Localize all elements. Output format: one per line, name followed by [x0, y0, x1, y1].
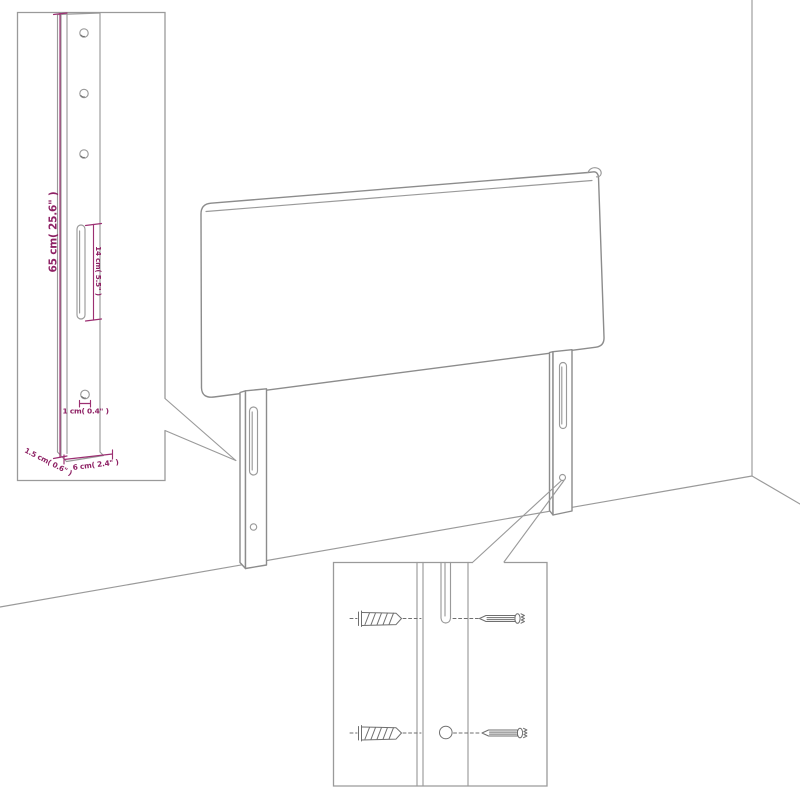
leader-line-inset1-top [165, 399, 236, 461]
headboard-left-leg [240, 389, 267, 569]
inset1-small-hole [81, 390, 90, 399]
leader-line-inset1-bottom [165, 431, 236, 461]
inset1-slot [77, 225, 85, 319]
headboard-panel [201, 168, 604, 397]
inset-mounting-detail [334, 563, 548, 787]
headboard-right-leg [550, 350, 573, 515]
inset1-dimension-lines [54, 13, 113, 464]
inset-leg-dimensions: 65 cm( 25.6" ) 14 cm( 5.5" ) 1 cm( 0.4" … [18, 13, 166, 481]
callout-leaders [165, 399, 564, 563]
left-leg-side-face [240, 391, 246, 569]
headboard-face [201, 172, 604, 397]
diagram-canvas: 65 cm( 25.6" ) 14 cm( 5.5" ) 1 cm( 0.4" … [0, 0, 800, 800]
inset1-leg-art [58, 13, 104, 462]
diagram-page: 65 cm( 25.6" ) 14 cm( 5.5" ) 1 cm( 0.4" … [0, 0, 800, 800]
upper-screw-shaft [480, 616, 516, 622]
lower-screw-shaft [482, 730, 518, 736]
floor-wall-line-right [752, 476, 800, 504]
right-leg-front-face [553, 350, 572, 515]
leader-line-inset2-left [473, 481, 562, 563]
left-leg-front-face [246, 389, 267, 569]
slot-dimension-label: 14 cm( 5.5" ) [94, 246, 103, 296]
inset1-dimension-labels: 65 cm( 25.6" ) 14 cm( 5.5" ) 1 cm( 0.4" … [23, 192, 119, 478]
inset2-border [334, 563, 548, 787]
hole-dimension-label: 1 cm( 0.4" ) [63, 407, 109, 416]
leader-line-inset2-right [504, 481, 564, 563]
height-dimension-label: 65 cm( 25.6" ) [48, 192, 60, 273]
